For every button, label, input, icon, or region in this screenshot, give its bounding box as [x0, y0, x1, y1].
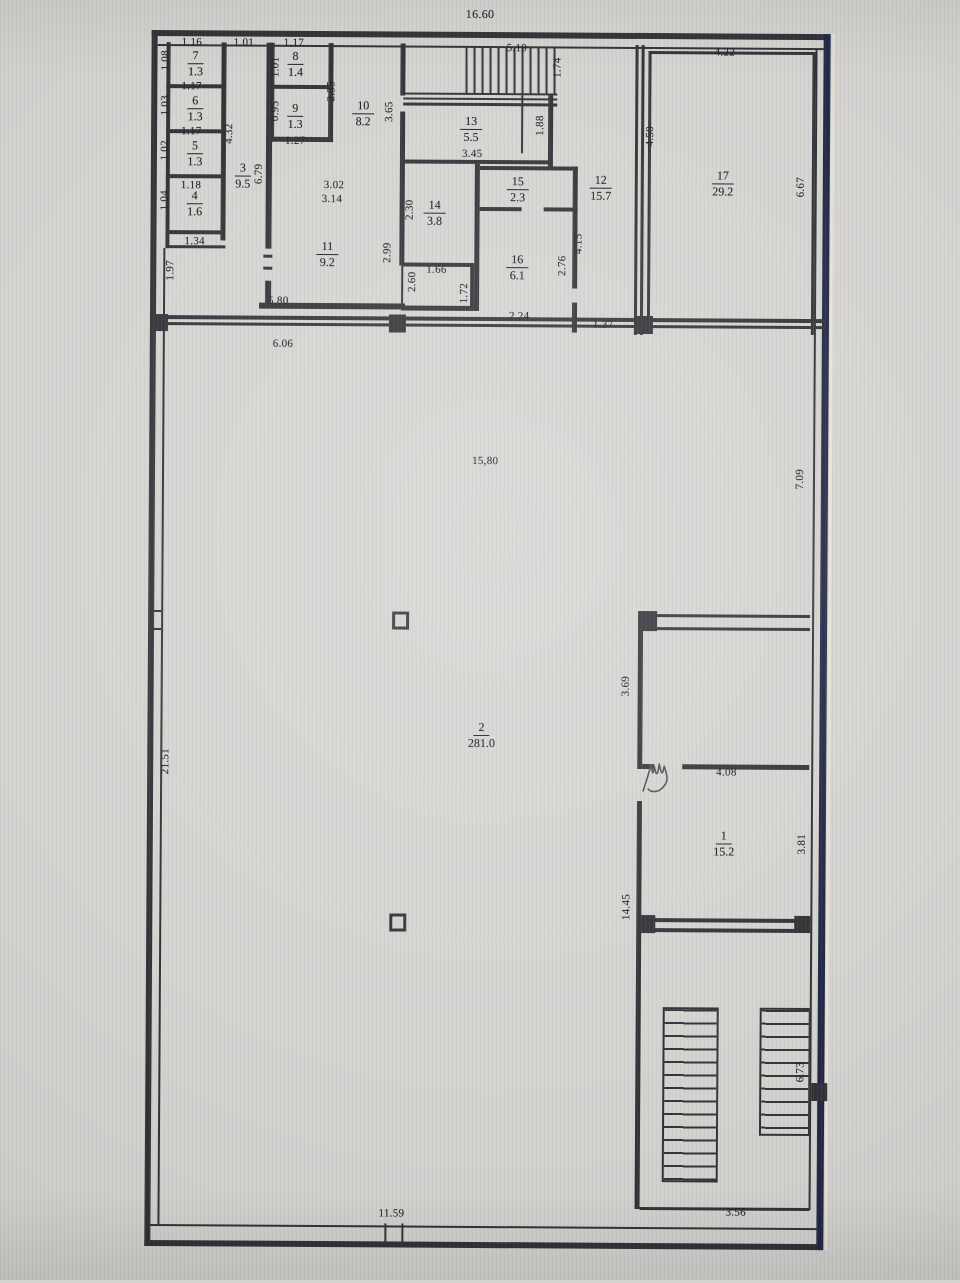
dim-r11-width-1: 3.02 [324, 179, 345, 191]
dim-r11-east: 2.99 [381, 242, 393, 263]
hand-annotation [639, 751, 687, 797]
dim-r16-width: 2.24 [509, 310, 530, 322]
wall [635, 801, 642, 1209]
room-area: 1.3 [175, 64, 215, 80]
wall [682, 764, 809, 770]
wall [480, 166, 578, 171]
dim-right-block-left: 14.45 [620, 894, 632, 920]
room-label-16: 166.1 [497, 250, 537, 284]
wall [403, 103, 557, 107]
room-number: 11 [317, 240, 339, 255]
floor-plan: 71.3 61.3 51.3 41.6 81.4 91.3 39.5 108.2… [0, 0, 960, 1283]
room-area: 1.3 [175, 154, 215, 170]
room-area: 15.7 [581, 189, 621, 205]
room-area: 6.1 [497, 268, 537, 284]
room-label-10: 108.2 [343, 96, 383, 130]
wall [403, 98, 557, 101]
dim-r1-east: 3.81 [796, 834, 808, 855]
wall [548, 95, 553, 167]
dim-hall-width: 15,80 [472, 455, 498, 467]
wall [399, 112, 405, 266]
room-number: 14 [424, 199, 446, 214]
dim-r10-side: 3.65 [383, 101, 395, 122]
dim-r13-width: 3.45 [462, 148, 483, 160]
wall [165, 230, 223, 234]
room-number: 3 [235, 161, 251, 176]
room-number: 8 [288, 50, 304, 65]
dim-r6-height: 1.03 [159, 95, 171, 116]
dim-r17-east: 6.67 [795, 177, 807, 198]
room-number: 16 [506, 253, 528, 268]
dim-r14-side: 2.30 [404, 200, 416, 221]
wall-tick [148, 628, 161, 630]
wall [638, 918, 810, 923]
room-label-7: 71.3 [175, 46, 215, 80]
dim-r8-width: 1.17 [284, 37, 305, 49]
wall [155, 322, 825, 329]
wall-block [794, 916, 810, 933]
wall [640, 45, 645, 335]
dim-r7-width: 1.16 [182, 36, 203, 48]
room-area: 15.2 [704, 844, 744, 860]
room-area: 9.2 [307, 255, 347, 271]
wall [637, 614, 643, 769]
door-mark [263, 267, 272, 270]
wall [643, 627, 810, 631]
dim-vest-height: 2.60 [406, 272, 418, 293]
room-number: 9 [287, 102, 303, 117]
room-label-17: 1729.2 [703, 166, 743, 200]
dim-r13-side-2: 1.74 [551, 57, 563, 78]
room-number: 2 [473, 721, 489, 736]
dim-gap-width: 1.37 [593, 319, 614, 331]
room-number: 1 [716, 829, 732, 844]
dim-vest-height-2: 1.72 [458, 283, 470, 304]
room-number: 13 [460, 115, 482, 130]
dim-bottom-width: 11.59 [378, 1207, 404, 1219]
room-number: 5 [187, 139, 203, 154]
dim-r5-width: 1.17 [181, 125, 202, 137]
room-label-5: 51.3 [175, 136, 215, 170]
room-label-2: 2281.0 [461, 718, 501, 752]
room-label-1: 115.2 [704, 826, 744, 860]
room-area: 3.8 [415, 214, 455, 230]
wall [572, 167, 578, 289]
dim-corr-top: 1.01 [234, 36, 255, 48]
dim-r4-height: 1.04 [159, 190, 171, 211]
wall [647, 51, 652, 334]
room-label-15: 152.3 [498, 172, 538, 206]
dim-r6-width: 1.17 [181, 80, 202, 92]
wall [403, 93, 557, 96]
room-area: 2.3 [498, 190, 538, 206]
wall [480, 207, 522, 211]
dim-tick [384, 1223, 386, 1242]
dim-strip: 1.34 [184, 235, 205, 247]
wall-block [811, 1083, 827, 1101]
dim-r9-height: 0.95 [269, 101, 281, 122]
dim-r9-width: 1.27 [285, 135, 306, 147]
wall [401, 266, 403, 308]
dim-vest-width: 1.66 [426, 264, 447, 276]
dim-r5-height: 1.02 [159, 140, 171, 161]
room-number: 15 [507, 175, 529, 190]
wall [474, 164, 480, 310]
room-area: 8.2 [343, 114, 383, 130]
dim-r4-width: 1.18 [181, 179, 202, 191]
wall [643, 614, 810, 618]
room-number: 6 [187, 94, 203, 109]
dim-r13-side-1: 1.88 [534, 115, 546, 136]
dim-r89-side: 2.35 [325, 81, 337, 102]
room-number: 17 [712, 169, 734, 184]
wall [270, 85, 332, 89]
room-label-6: 61.3 [175, 91, 215, 125]
room-label-13: 135.5 [451, 112, 491, 146]
wall-block [389, 314, 406, 332]
room-area: 281.0 [461, 736, 501, 752]
wall-block [154, 314, 168, 331]
wall-tick [148, 610, 161, 612]
dim-r7-height: 1.08 [159, 50, 171, 71]
wall [401, 306, 479, 311]
wall [144, 30, 157, 1246]
wall [149, 1224, 817, 1230]
dim-corr-height: 6.79 [253, 164, 265, 185]
room-label-11: 119.2 [307, 237, 347, 271]
dim-right-block-top: 3.69 [620, 676, 632, 697]
room-area: 29.2 [703, 184, 743, 200]
dim-stair-east: 6.73 [794, 1062, 806, 1083]
wall-block [638, 611, 657, 631]
room-label-14: 143.8 [415, 196, 455, 230]
dim-tick [401, 1224, 403, 1243]
room-number: 10 [352, 99, 374, 114]
wall [157, 248, 165, 1224]
wall [144, 1240, 822, 1250]
wall-block [637, 915, 655, 933]
room-number: 7 [188, 49, 204, 64]
dim-r17-width: 4.22 [715, 46, 736, 58]
dim-left-gap: 1.97 [164, 260, 176, 281]
room-area: 1.3 [175, 109, 215, 125]
wall [166, 174, 224, 178]
wall [400, 44, 405, 96]
wall [638, 928, 810, 933]
dim-corr-side: 4.32 [223, 123, 235, 144]
wall [634, 45, 639, 335]
room-area: 1.6 [175, 204, 215, 220]
dim-shaft: 4.50 [644, 126, 656, 147]
room-number: 4 [187, 189, 203, 204]
dim-r8-height: 1.01 [269, 57, 281, 78]
dim-r11-width-2: 3.14 [322, 193, 343, 205]
door-mark [263, 255, 272, 258]
staircase-lower-flight [662, 1007, 719, 1182]
dim-stair-top: 5.19 [507, 42, 528, 54]
dim-r11-bottom: 5.80 [268, 295, 289, 307]
wall-block [635, 316, 653, 334]
dim-r16-east: 2.76 [556, 255, 568, 276]
column-symbol [392, 611, 409, 629]
column-symbol [389, 913, 406, 931]
dim-hall-top: 6.06 [273, 338, 294, 350]
dim-hall-left: 21.51 [159, 748, 171, 774]
dim-r1-top: 4.08 [716, 766, 737, 778]
dim-stair-width: 3.56 [725, 1207, 746, 1219]
dim-r12-west: 4.15 [572, 234, 584, 255]
wall [521, 95, 523, 153]
room-label-12: 1215.7 [581, 171, 621, 205]
dim-hall-right: 7.09 [794, 469, 806, 490]
room-area: 5.5 [451, 130, 491, 146]
room-number: 12 [590, 174, 612, 189]
dim-total-width: 16.60 [466, 7, 495, 22]
